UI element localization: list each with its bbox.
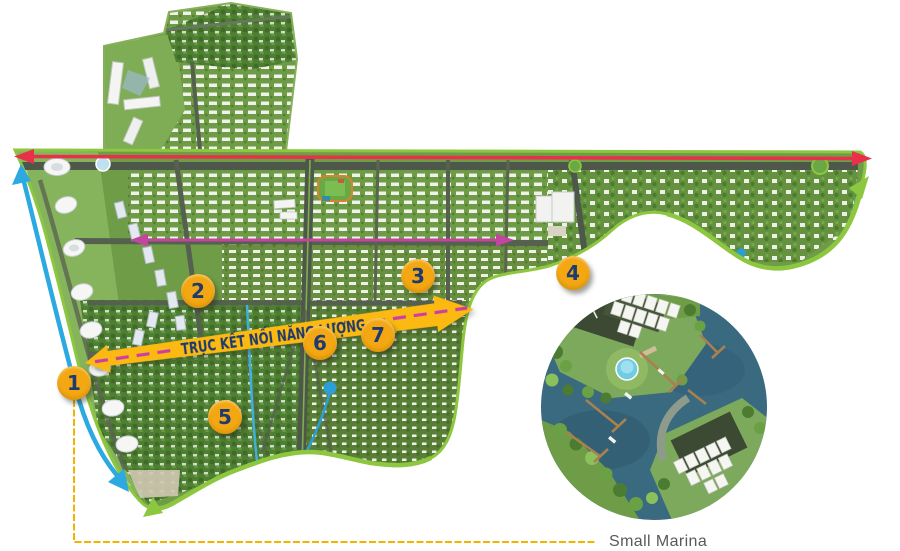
marker-6[interactable]: 6 [303, 326, 337, 360]
masterplan-canvas: TRỤC KẾT NỐI NĂNG LƯỢNG [0, 0, 900, 550]
marker-4[interactable]: 4 [556, 256, 590, 290]
marker-3[interactable]: 3 [401, 259, 435, 293]
masterplan-map [0, 140, 900, 540]
marker-1[interactable]: 1 [57, 366, 91, 400]
map-illustration: TRỤC KẾT NỐI NĂNG LƯỢNG [0, 0, 900, 550]
small-marina-label: Small Marina [609, 533, 707, 551]
marker-2[interactable]: 2 [181, 274, 215, 308]
marker-7[interactable]: 7 [361, 318, 395, 352]
marina-inset [541, 281, 770, 520]
north-parcel [100, 0, 300, 155]
marker-5[interactable]: 5 [208, 400, 242, 434]
